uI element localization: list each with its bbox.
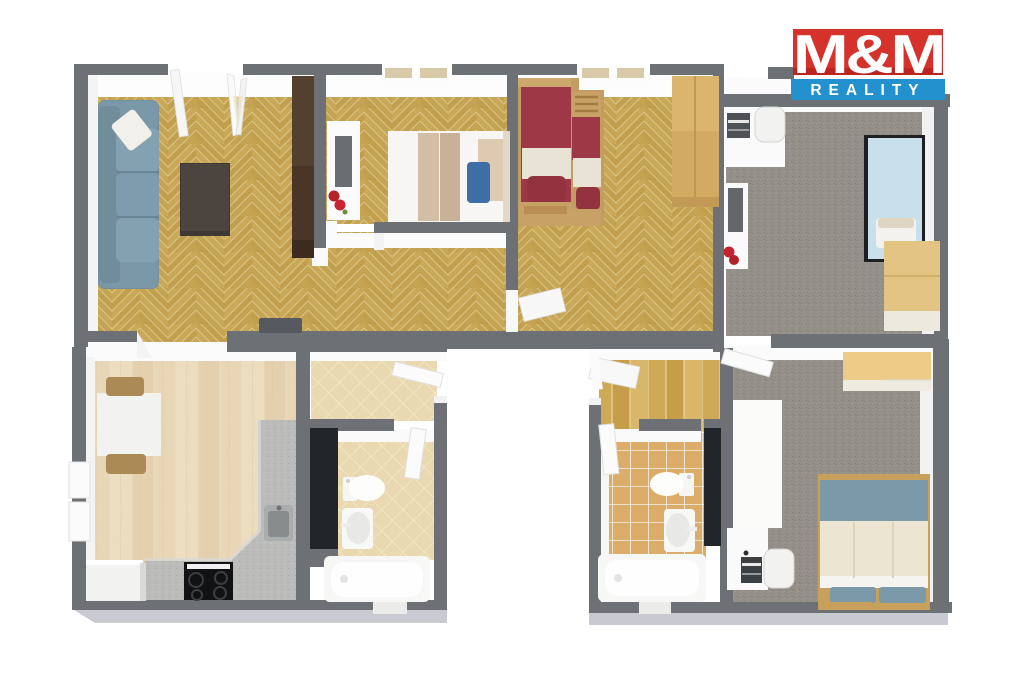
svg-text:REALITY: REALITY [810, 82, 925, 99]
svg-text:M&M: M&M [793, 24, 943, 85]
